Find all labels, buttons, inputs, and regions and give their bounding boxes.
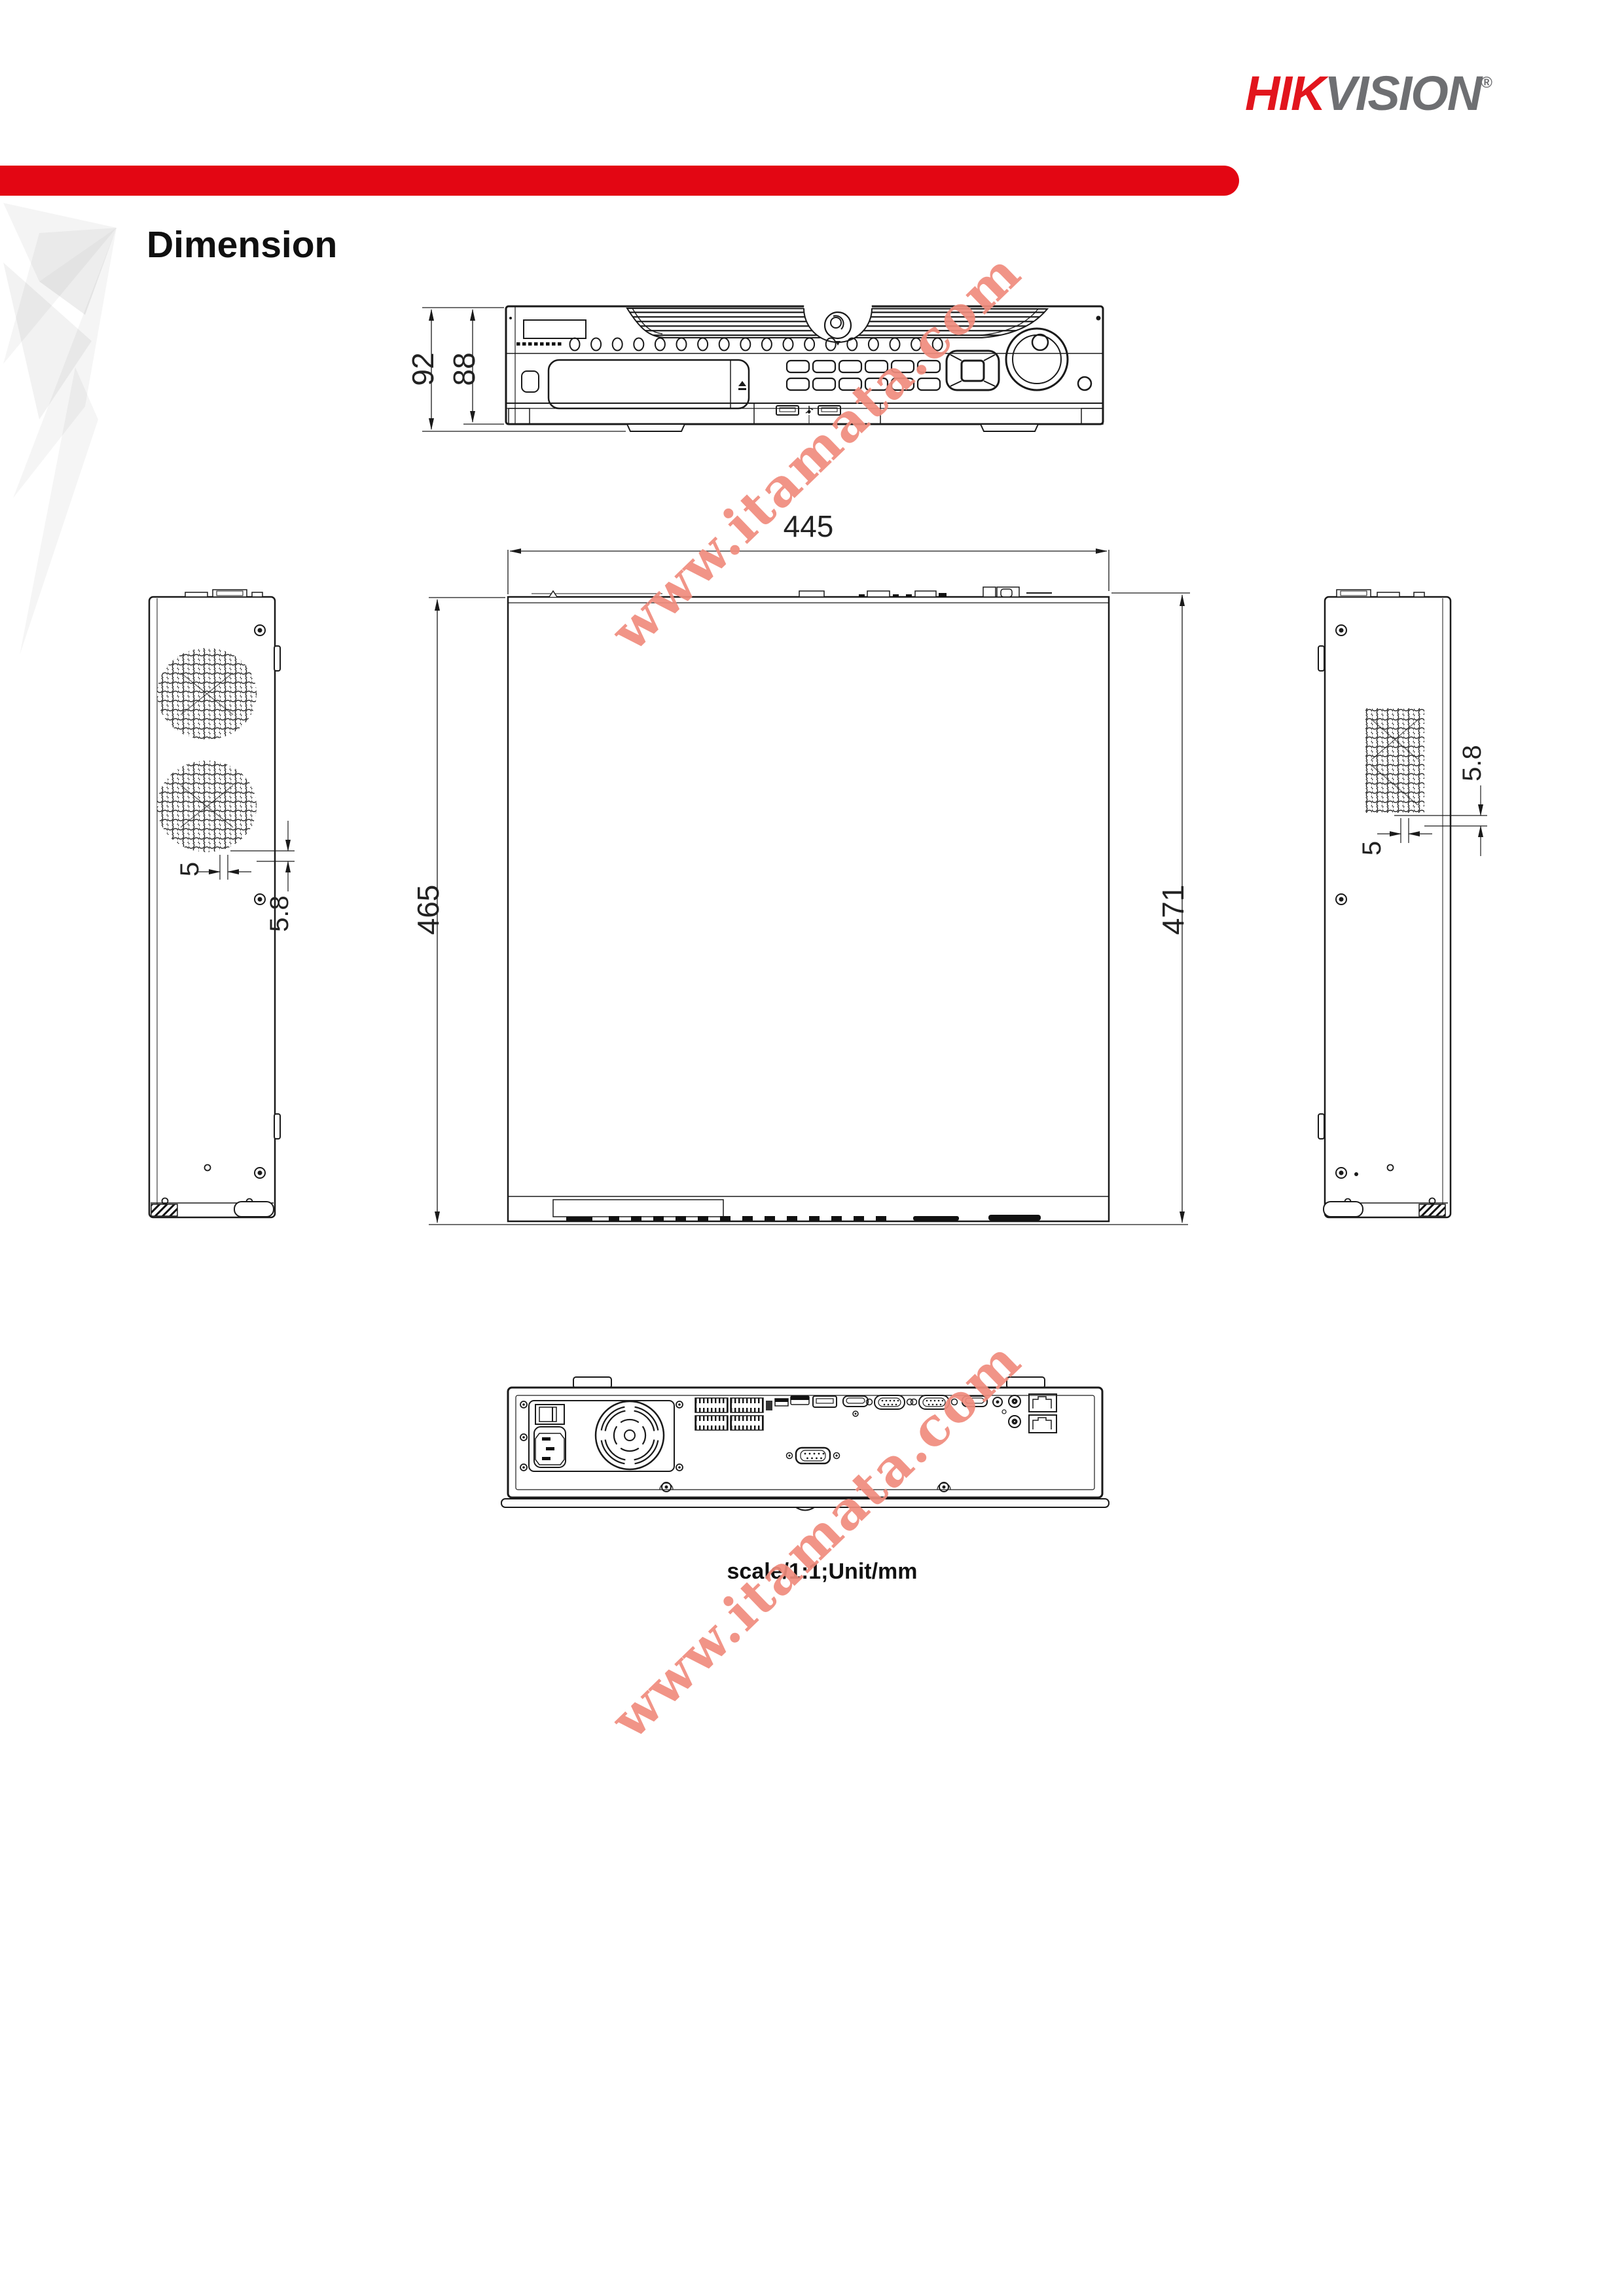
hikvision-logo: HIKVISION®: [1245, 65, 1492, 121]
right-side-top-bumps: [1337, 590, 1424, 597]
dim-top-depth-overall: 471: [1156, 885, 1190, 935]
front-foot-right: [981, 424, 1038, 431]
right-side-foot: [1419, 1204, 1445, 1216]
top-view-rear-bumps: [532, 587, 1052, 597]
dim-right-gap: 5: [1358, 841, 1386, 855]
logo-hik: HIK: [1245, 66, 1324, 120]
top-view: 445 465 471: [411, 509, 1190, 1225]
dim-front-height-total: 92: [406, 352, 440, 386]
left-side-top-bumps: [185, 590, 262, 597]
front-foot-left: [627, 424, 685, 431]
left-side-view: 5 5.8: [149, 590, 295, 1217]
logo-vision: VISION: [1324, 66, 1481, 120]
rear-view: [501, 1377, 1109, 1511]
right-fan-grille: [1365, 708, 1424, 813]
dim-right-offset: 5.8: [1458, 745, 1487, 781]
registered-mark: ®: [1481, 74, 1492, 92]
dim-top-depth: 465: [411, 885, 445, 935]
right-side-view: 5 5.8: [1318, 590, 1487, 1217]
dim-left-offset: 5.8: [265, 895, 294, 932]
datasheet-page: HIKVISION® Dimension: [0, 0, 1624, 2296]
dim-left-gap: 5: [175, 862, 204, 876]
dim-front-height-body: 88: [447, 352, 481, 386]
dimension-drawing: 92 88: [0, 0, 1624, 2296]
page-title: Dimension: [147, 223, 337, 266]
left-side-foot: [151, 1204, 177, 1216]
